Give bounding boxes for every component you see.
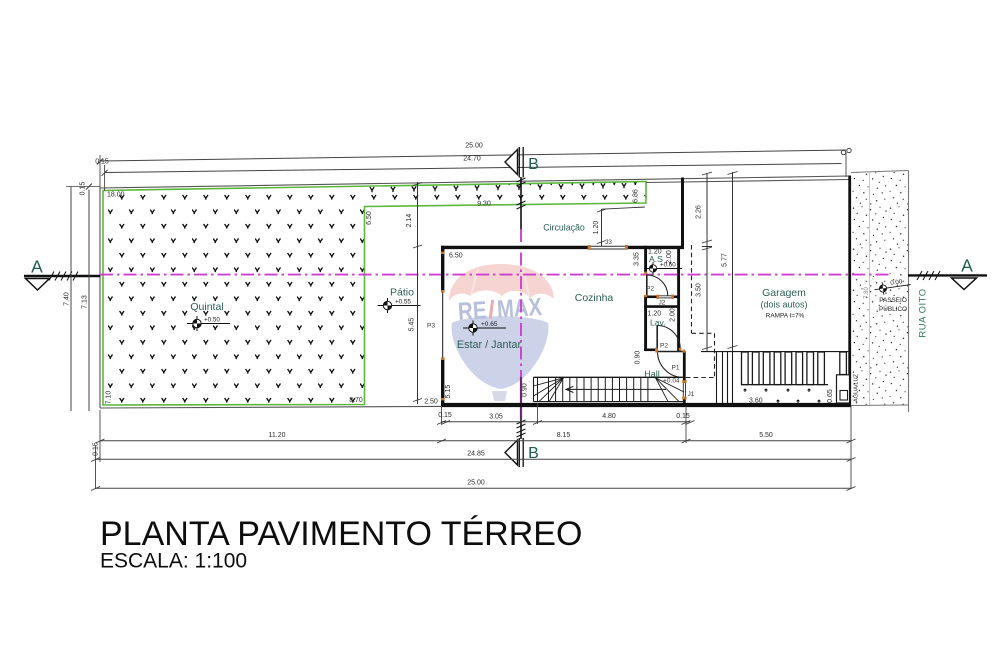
svg-text:P2: P2 [646,286,654,293]
svg-text:8.70: 8.70 [349,397,363,404]
svg-text:0.15: 0.15 [438,412,452,419]
svg-text:3.35: 3.35 [634,252,641,266]
svg-text:0.90: 0.90 [522,383,529,397]
svg-text:Garagem: Garagem [762,287,806,299]
svg-text:B: B [528,156,539,173]
svg-text:PÚBLICO: PÚBLICO [879,304,907,313]
svg-text:+0.65: +0.65 [481,321,498,328]
svg-text:+0.60: +0.60 [660,262,676,269]
svg-text:J3: J3 [605,239,612,246]
svg-text:Cozinha: Cozinha [575,292,614,304]
svg-text:+0.55: +0.55 [395,299,411,306]
svg-text:4.80: 4.80 [602,413,616,420]
svg-text:5.50: 5.50 [759,432,773,439]
svg-text:Pátio: Pátio [390,287,414,299]
svg-text:0.90: 0.90 [635,351,642,365]
svg-text:6.86: 6.86 [633,189,640,203]
svg-text:2.00: 2.00 [670,308,677,322]
svg-text:PLANTA PAVIMENTO TÉRREO: PLANTA PAVIMENTO TÉRREO [100,515,582,553]
svg-text:P3: P3 [427,323,435,330]
svg-text:+0.04: +0.04 [663,378,680,385]
svg-text:9.30: 9.30 [477,200,491,207]
svg-text:Lav.: Lav. [650,318,666,328]
svg-text:Estar / Jantar: Estar / Jantar [457,339,522,351]
svg-text:5.77: 5.77 [722,253,729,267]
svg-text:25.00: 25.00 [467,480,485,487]
svg-text:RAMPA I=7%: RAMPA I=7% [766,313,805,320]
svg-text:J2: J2 [659,300,666,307]
svg-text:3.60: 3.60 [749,398,763,405]
svg-text:/: / [487,296,496,324]
svg-text:RUA OITO: RUA OITO [918,288,929,337]
svg-text:8.15: 8.15 [557,432,571,439]
svg-text:25.00: 25.00 [465,143,483,150]
svg-text:Hall: Hall [644,369,660,379]
svg-text:3.50: 3.50 [696,283,703,297]
svg-text:0.15: 0.15 [676,413,690,420]
svg-text:2.14: 2.14 [406,214,413,228]
svg-text:J1: J1 [688,391,695,398]
svg-text:0.15: 0.15 [80,182,87,196]
svg-text:P1: P1 [672,365,680,372]
svg-text:Quintal: Quintal [190,301,223,313]
svg-text:7.13: 7.13 [82,295,89,309]
svg-text:24.85: 24.85 [467,451,485,458]
svg-text:0.65: 0.65 [827,389,834,403]
svg-text:24.70: 24.70 [463,156,481,163]
svg-text:18.00: 18.00 [107,192,125,199]
svg-text:5.15: 5.15 [445,385,452,399]
svg-text:1.20: 1.20 [593,221,600,235]
svg-text:3.05: 3.05 [489,414,503,421]
svg-text:0.15: 0.15 [93,442,100,456]
svg-text:1.20: 1.20 [648,249,662,256]
svg-text:Circulação: Circulação [543,223,585,233]
svg-text:7.40: 7.40 [64,292,71,306]
svg-text:+0.50: +0.50 [204,317,220,324]
svg-text:1.20: 1.20 [648,311,662,318]
svg-text:7.10: 7.10 [106,391,113,405]
svg-text:2.50: 2.50 [424,399,438,406]
svg-text:P2: P2 [660,343,668,350]
svg-text:6.50: 6.50 [449,253,463,260]
svg-text:A: A [31,257,43,277]
svg-text:2.26: 2.26 [696,205,703,219]
svg-text:ESCALA: 1:100: ESCALA: 1:100 [100,550,247,573]
svg-text:6.50: 6.50 [366,211,373,225]
svg-text:11.20: 11.20 [269,432,286,439]
svg-text:7.80: 7.80 [864,287,870,299]
svg-text:MAX: MAX [496,293,543,324]
svg-text:A: A [961,256,973,276]
svg-text:PASSEIO: PASSEIO [879,297,907,304]
svg-text:(dois autos): (dois autos) [760,300,807,310]
svg-text:5.45: 5.45 [409,318,416,332]
svg-text:ÁGUA/LUZ: ÁGUA/LUZ [853,373,860,402]
